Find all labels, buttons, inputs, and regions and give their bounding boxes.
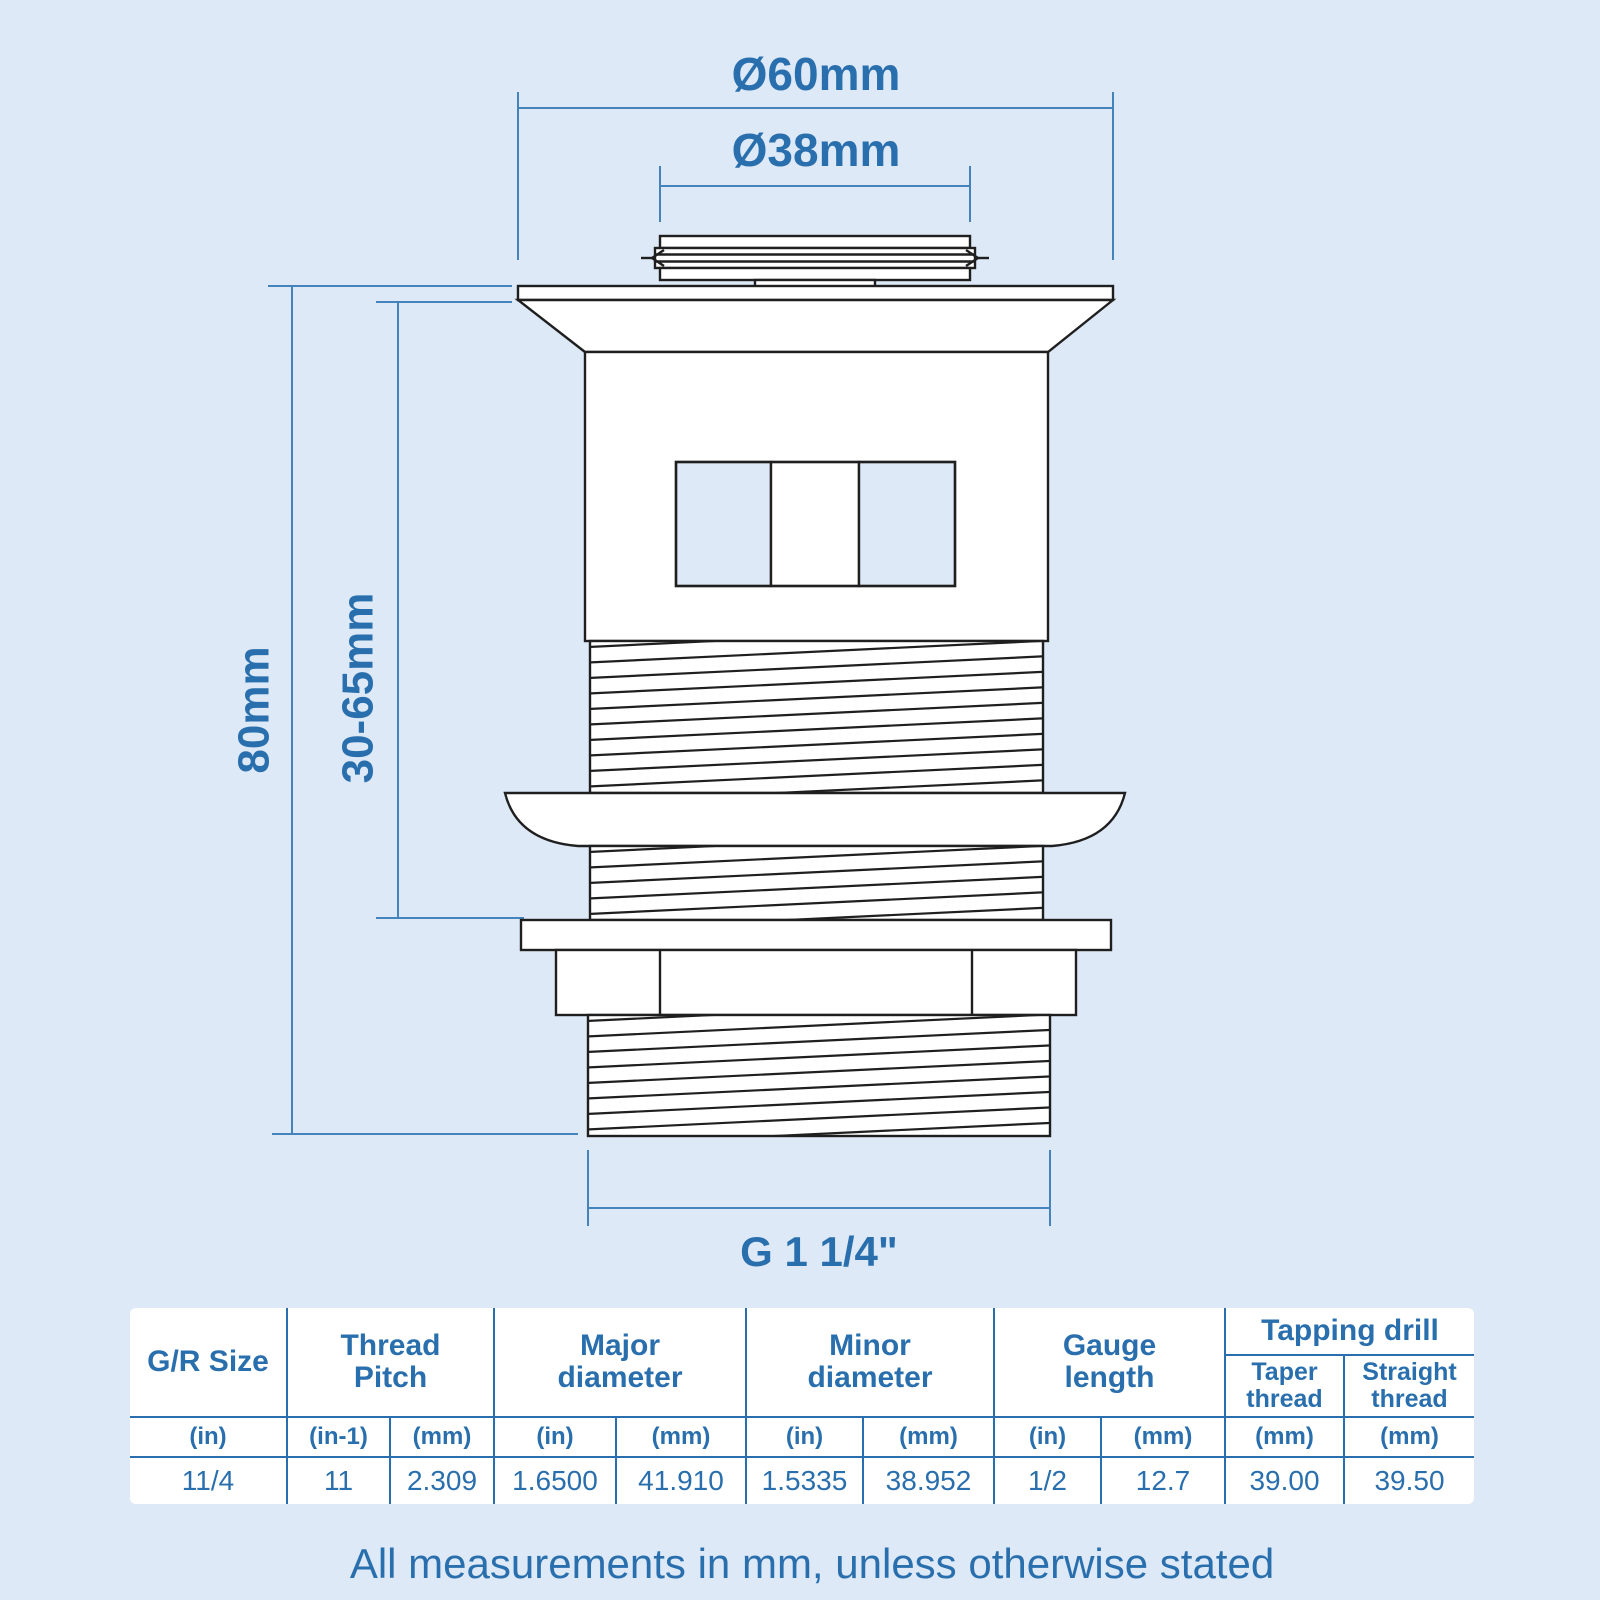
unit-pitch-in: (in-1) bbox=[287, 1417, 390, 1457]
thread-spec-table: G/R Size Thread Pitch Major diameter Min… bbox=[130, 1308, 1474, 1504]
value-gauge-in: 1/2 bbox=[994, 1457, 1101, 1504]
unit-taper-mm: (mm) bbox=[1225, 1417, 1344, 1457]
dim-adjustable-reach bbox=[376, 302, 524, 918]
backnut-washer bbox=[521, 920, 1111, 950]
plug-cap-seal bbox=[655, 248, 975, 268]
thread-section-middle bbox=[588, 830, 1045, 929]
col-header-gauge-length: Gauge length bbox=[994, 1308, 1225, 1417]
col-header-minor-diameter: Minor diameter bbox=[746, 1308, 994, 1417]
dim-label-overall-height: 80mm bbox=[230, 646, 279, 773]
thread-section-tail bbox=[586, 999, 1052, 1145]
dim-overall-height bbox=[268, 286, 578, 1134]
col-header-gr-size: G/R Size bbox=[130, 1308, 287, 1417]
value-gauge-mm: 12.7 bbox=[1101, 1457, 1225, 1504]
dim-thread-size bbox=[588, 1150, 1050, 1226]
col-header-taper-thread: Taper thread bbox=[1225, 1355, 1344, 1417]
dim-label-outer-diameter: Ø60mm bbox=[732, 48, 901, 100]
flange-neck bbox=[518, 300, 1113, 352]
overflow-slot-left bbox=[676, 462, 771, 586]
plug-cap-top-plate bbox=[660, 236, 970, 248]
plug-cap-bottom-plate bbox=[660, 268, 970, 280]
top-flange bbox=[518, 286, 1113, 300]
dim-label-adjustable-reach: 30-65mm bbox=[334, 593, 383, 784]
value-minor-in: 1.5335 bbox=[746, 1457, 863, 1504]
value-major-in: 1.6500 bbox=[494, 1457, 616, 1504]
overflow-slot-right bbox=[859, 462, 955, 586]
col-header-thread-pitch: Thread Pitch bbox=[287, 1308, 494, 1417]
thread-section-upper bbox=[588, 625, 1045, 802]
unit-gauge-in: (in) bbox=[994, 1417, 1101, 1457]
value-gr-size: 11/4 bbox=[130, 1457, 287, 1504]
unit-major-in: (in) bbox=[494, 1417, 616, 1457]
value-straight-mm: 39.50 bbox=[1344, 1457, 1474, 1504]
col-header-tapping-drill: Tapping drill bbox=[1225, 1308, 1474, 1355]
col-header-straight-thread: Straight thread bbox=[1344, 1355, 1474, 1417]
value-minor-mm: 38.952 bbox=[863, 1457, 994, 1504]
unit-pitch-mm: (mm) bbox=[390, 1417, 494, 1457]
dim-label-thread-size: G 1 1/4" bbox=[740, 1228, 898, 1275]
technical-drawing: Ø60mm Ø38mm 80mm 30-65mm bbox=[0, 0, 1600, 1280]
value-pitch-in: 11 bbox=[287, 1457, 390, 1504]
unit-minor-in: (in) bbox=[746, 1417, 863, 1457]
value-major-mm: 41.910 bbox=[616, 1457, 746, 1504]
unit-minor-mm: (mm) bbox=[863, 1417, 994, 1457]
sealing-washer bbox=[505, 793, 1125, 846]
unit-gr-size: (in) bbox=[130, 1417, 287, 1457]
dim-label-inner-diameter: Ø38mm bbox=[732, 124, 901, 176]
overflow-slot-center bbox=[771, 462, 859, 586]
unit-major-mm: (mm) bbox=[616, 1417, 746, 1457]
unit-gauge-mm: (mm) bbox=[1101, 1417, 1225, 1457]
spec-table-panel: G/R Size Thread Pitch Major diameter Min… bbox=[130, 1308, 1474, 1504]
measurement-note: All measurements in mm, unless otherwise… bbox=[24, 1540, 1600, 1588]
value-taper-mm: 39.00 bbox=[1225, 1457, 1344, 1504]
col-header-major-diameter: Major diameter bbox=[494, 1308, 746, 1417]
hex-backnut bbox=[556, 950, 1076, 1015]
value-pitch-mm: 2.309 bbox=[390, 1457, 494, 1504]
unit-straight-mm: (mm) bbox=[1344, 1417, 1474, 1457]
